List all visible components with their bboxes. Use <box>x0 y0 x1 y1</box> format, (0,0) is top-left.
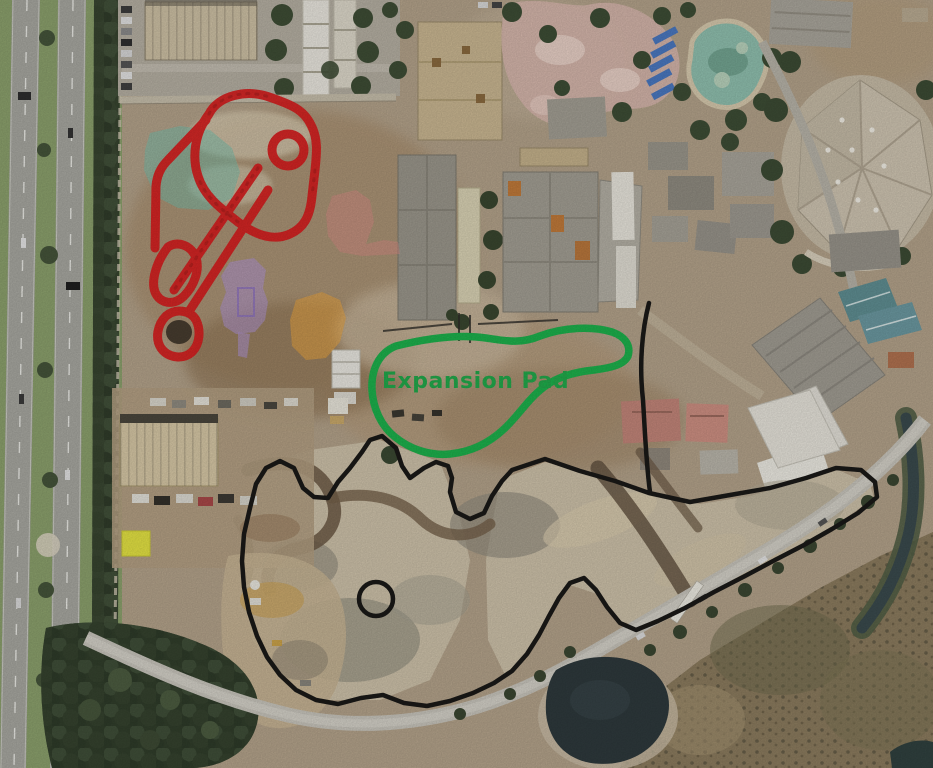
photo-grain <box>0 0 933 768</box>
aerial-map-screenshot: Expansion Pad <box>0 0 933 768</box>
satellite-image: Expansion Pad <box>0 0 933 768</box>
